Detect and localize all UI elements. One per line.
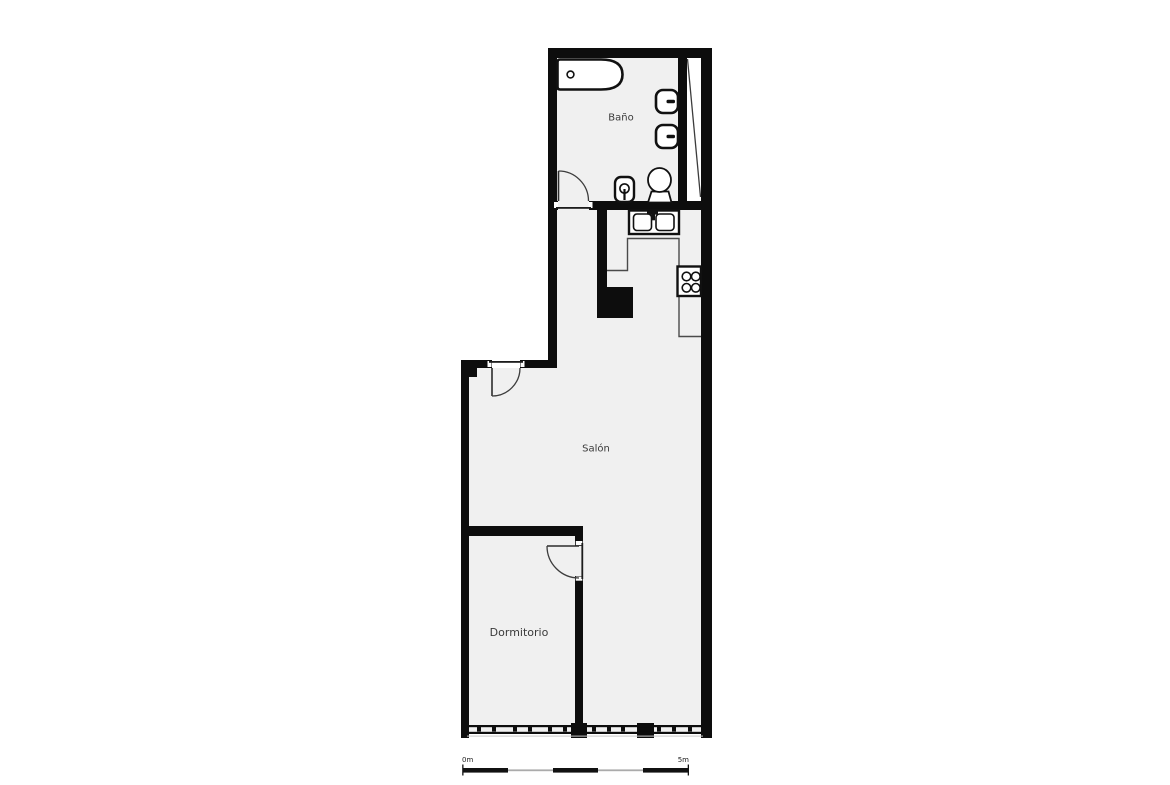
entrance-wall-right	[520, 360, 557, 368]
scale-segment	[643, 768, 688, 773]
living-kitchen-bedroom-floor	[469, 201, 701, 733]
scale-end-label: 5m	[678, 756, 689, 764]
column-block	[597, 287, 633, 318]
kitchen-faucet-icon	[651, 211, 655, 221]
scale-segment	[463, 768, 508, 773]
scale-segment	[553, 768, 598, 773]
bedroom-top-wall	[461, 526, 583, 536]
right-exterior-wall	[701, 48, 712, 738]
radiator-handle-icon	[667, 135, 676, 138]
top-exterior-wall	[548, 48, 712, 58]
bedroom-label: Dormitorio	[490, 626, 549, 639]
window-shadow-line	[467, 736, 703, 737]
scale-segment	[508, 769, 553, 771]
kitchen-sink	[629, 211, 679, 235]
window-outer-line	[467, 725, 703, 727]
bathroom-label: Baño	[608, 113, 633, 124]
bathroom-shaft-divider-wall	[678, 56, 687, 203]
washbasin	[615, 177, 634, 202]
stove	[678, 267, 702, 297]
toilet	[648, 168, 672, 203]
radiator-handle-icon	[667, 100, 676, 103]
kitchen-partition-wall	[597, 210, 607, 287]
living-room-label: Salón	[582, 443, 610, 455]
bedroom-partition-lower	[575, 576, 583, 727]
scale-start-label: 0m	[462, 756, 473, 764]
lower-left-exterior-wall	[461, 368, 469, 738]
scale-segment	[598, 769, 643, 771]
window-inner-line	[467, 732, 703, 734]
scale-bar: 0m 5m	[462, 756, 689, 776]
floor-plan-canvas: Baño Salón Dormitorio 0m 5m	[0, 0, 1170, 785]
